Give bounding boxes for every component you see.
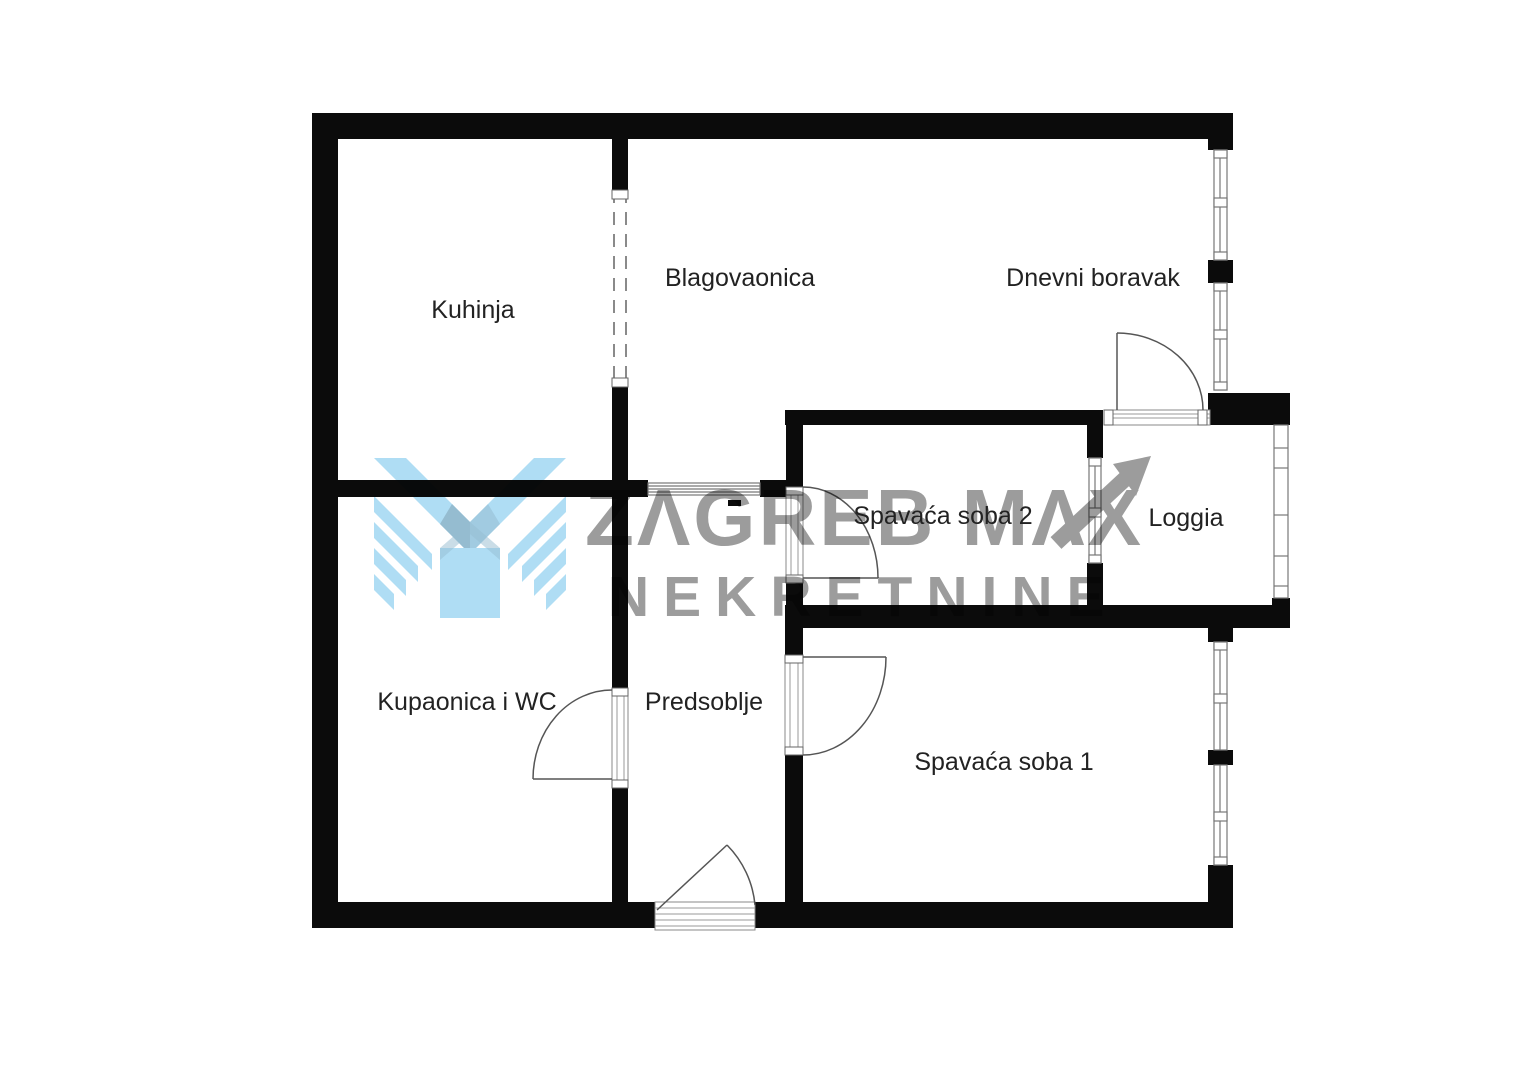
wall-right-mullion (1208, 260, 1233, 283)
room-label-spavaca-soba-2: Spavaća soba 2 (853, 502, 1032, 530)
room-label-loggia: Loggia (1148, 504, 1223, 532)
window-livingroom-1 (1214, 150, 1227, 260)
wall-hall-bedroom1-lower (785, 755, 803, 902)
wall-bedroom1-right-bottom (1208, 865, 1233, 902)
room-label-kupaonica-i-wc: Kupaonica i WC (377, 688, 556, 716)
wall-hall-bedroom1-upper (785, 628, 803, 655)
wall-right-upper (1208, 113, 1233, 150)
window-livingroom-2 (1214, 283, 1227, 390)
floor-plan-canvas: ZΛGREB MΛX NEKRETNINE Kuhinja Blagovaoni… (0, 0, 1522, 1080)
wall-bedroom1-right-stub (1208, 628, 1233, 642)
room-label-blagovaonica: Blagovaonica (665, 264, 815, 292)
wall-left (312, 113, 338, 928)
wall-bath-hall-lower (612, 788, 628, 902)
window-bedroom1-2 (1214, 765, 1227, 865)
wall-bedroom1-right-mullion (1208, 750, 1233, 765)
floor-plan-page: ZΛGREB MΛX NEKRETNINE Kuhinja Blagovaoni… (0, 0, 1522, 1080)
room-label-dnevni-boravak: Dnevni boravak (1006, 264, 1180, 292)
window-bedroom1-1 (1214, 642, 1227, 750)
opening-kitchen-dining (612, 190, 628, 387)
wall-bottom-right (755, 902, 1233, 928)
wall-kitchen-right-upper (612, 139, 628, 190)
wall-loggia-left-upper (1087, 425, 1103, 458)
wall-bottom-left (312, 902, 655, 928)
room-label-predsoblje: Predsoblje (645, 688, 763, 716)
window-loggia-right (1274, 425, 1288, 598)
room-label-kuhinja: Kuhinja (431, 296, 514, 324)
watermark-brand-line2: NEKRETNINE (608, 565, 1119, 629)
wall-loggia-top-corner (1208, 393, 1290, 425)
wall-top (312, 113, 1233, 139)
room-label-spavaca-soba-1: Spavaća soba 1 (914, 748, 1093, 776)
wall-bedroom2-top (785, 410, 1103, 425)
